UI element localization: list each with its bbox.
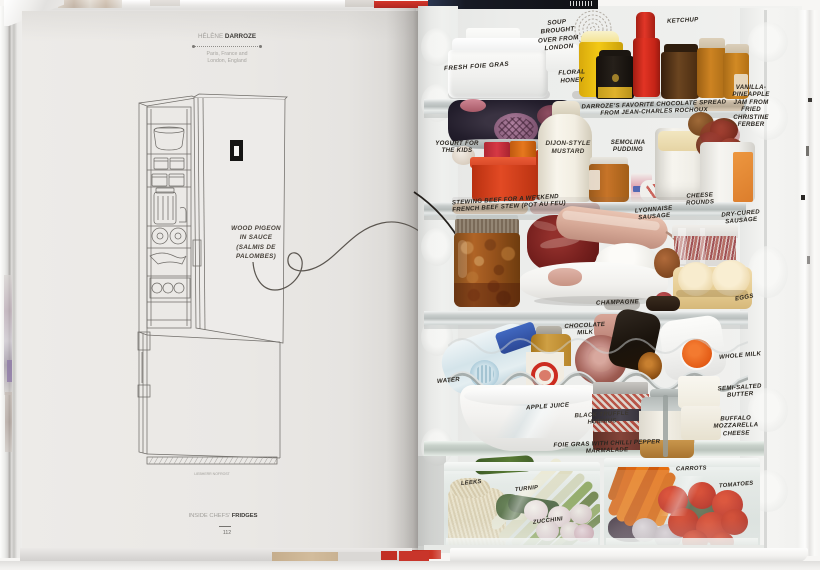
svg-text:LIEBHERR NOFROST: LIEBHERR NOFROST: [194, 472, 230, 476]
